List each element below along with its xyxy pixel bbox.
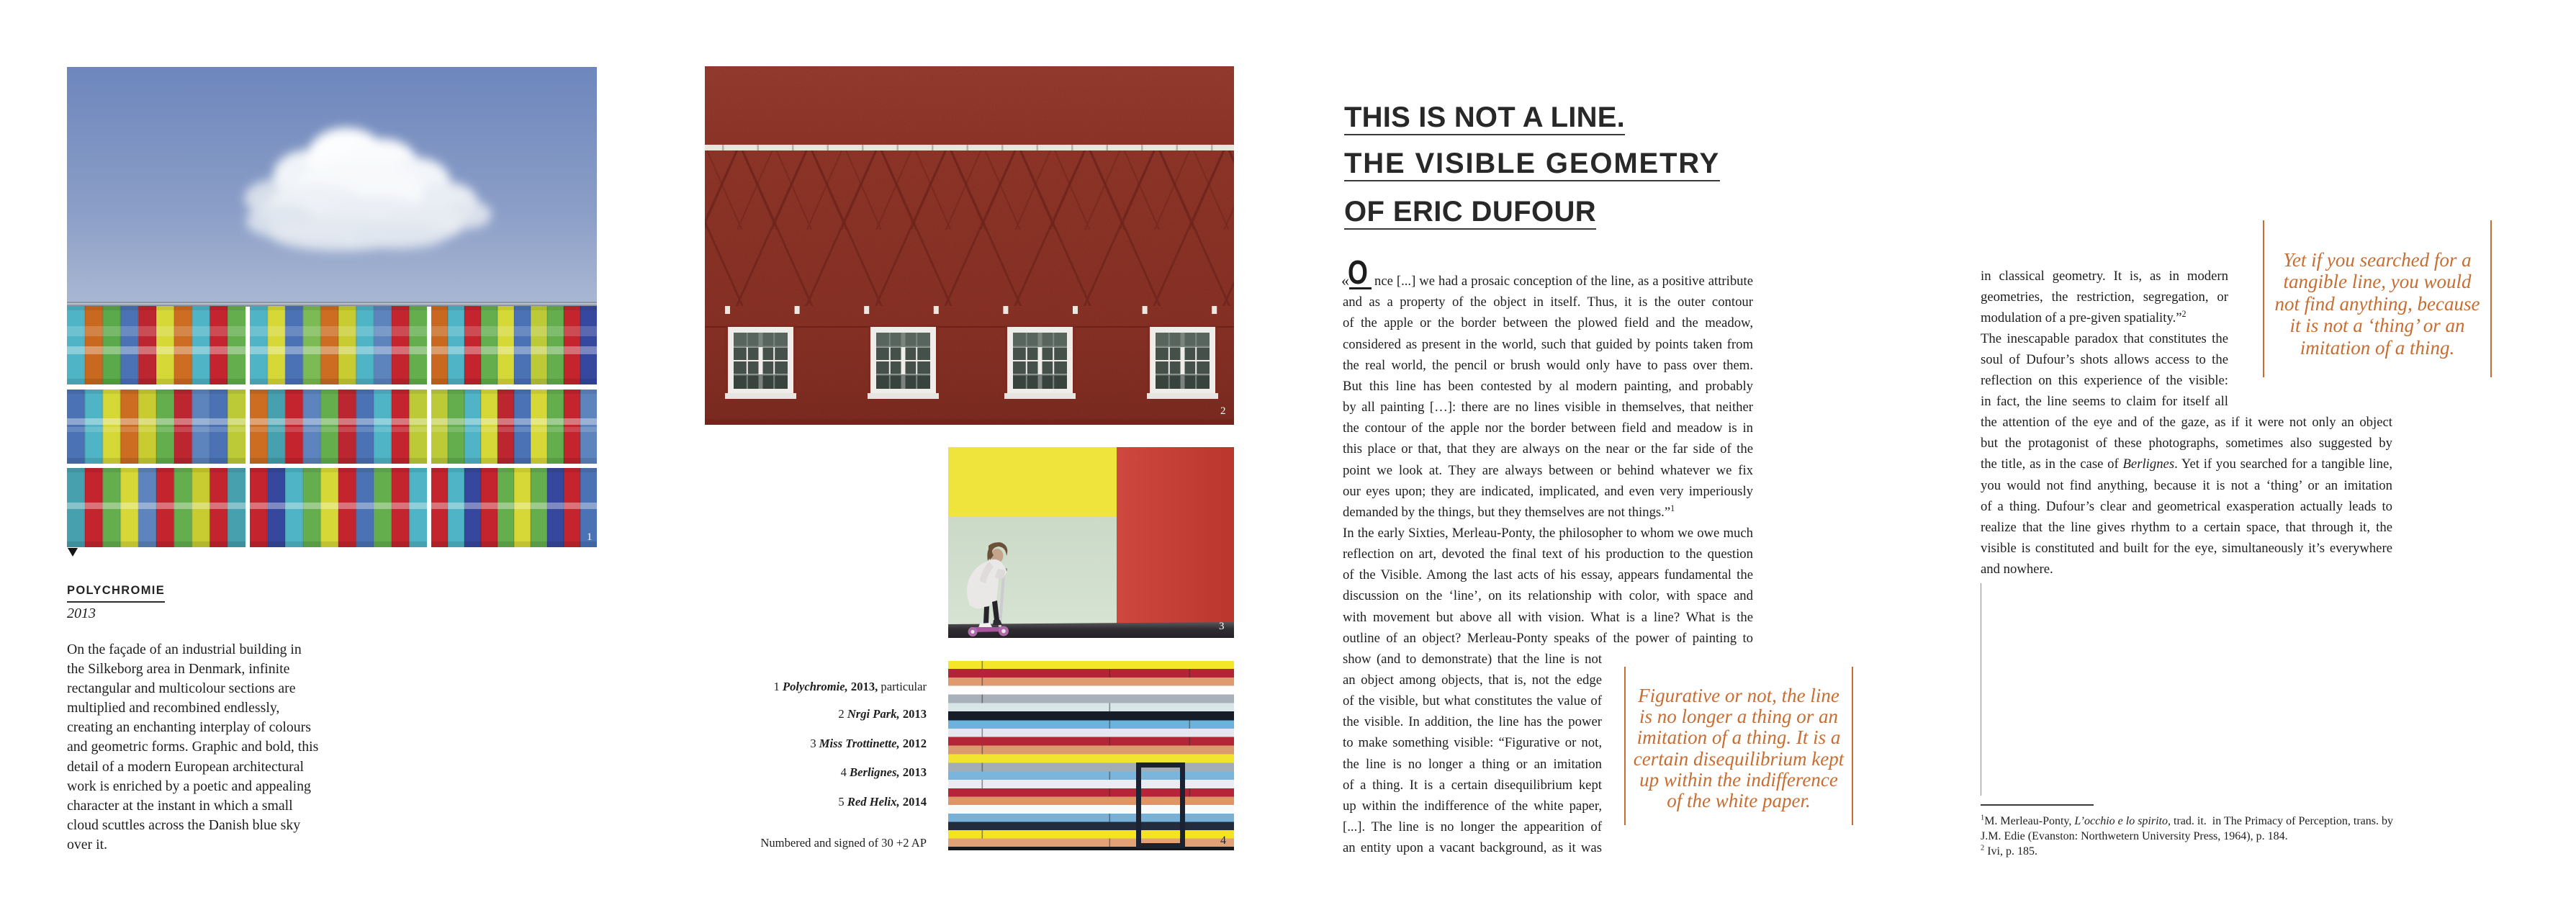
svg-text:3: 3 <box>1219 621 1225 632</box>
svg-text:1: 1 <box>587 531 593 543</box>
svg-text:4: 4 <box>1220 834 1226 847</box>
svg-text:2: 2 <box>1220 405 1226 417</box>
